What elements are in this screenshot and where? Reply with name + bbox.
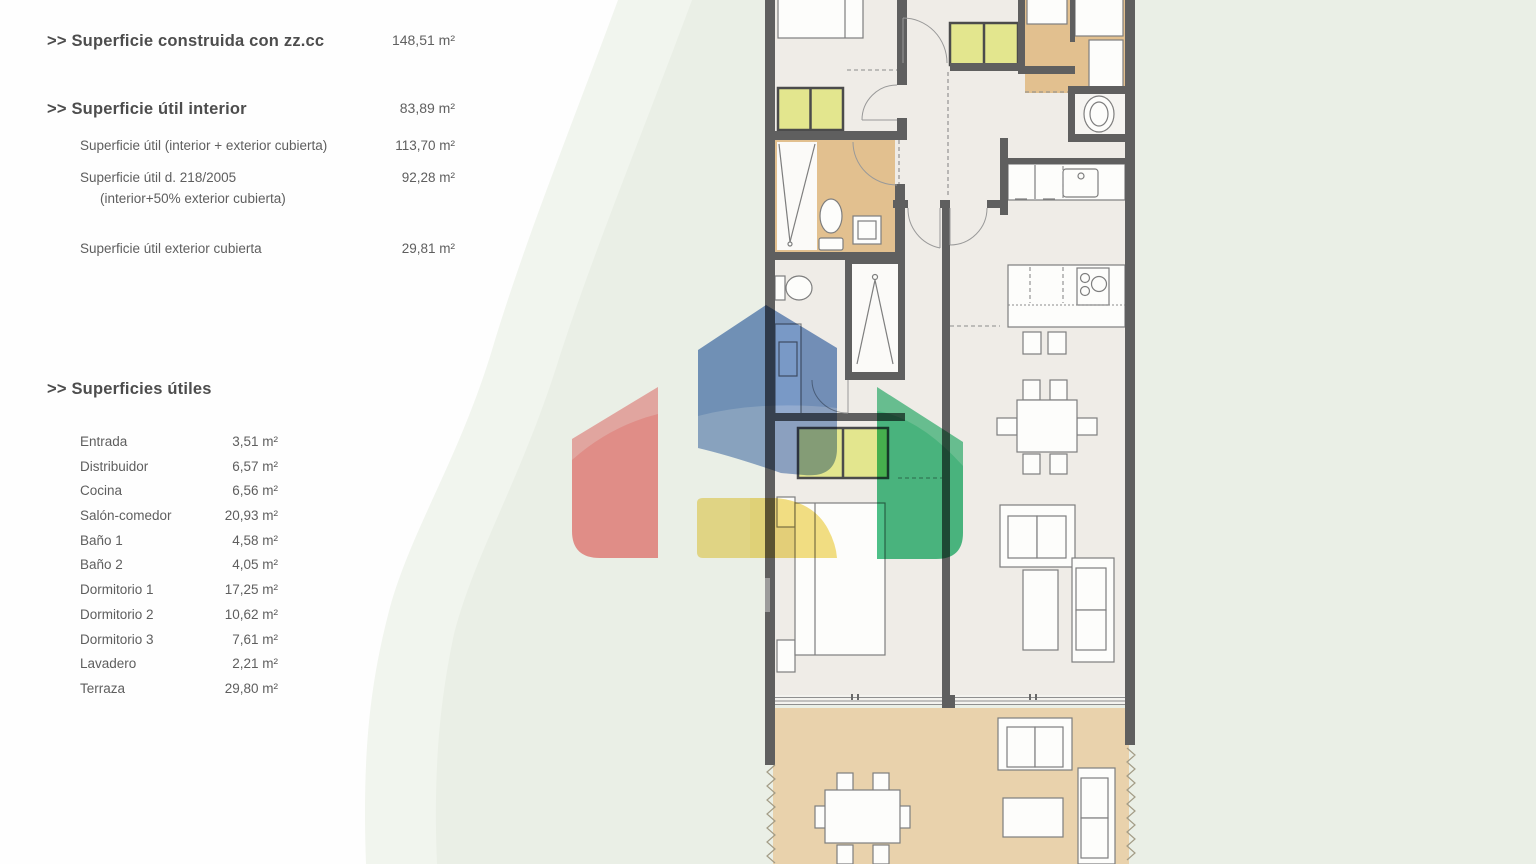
wall-right-exterior	[1125, 0, 1135, 745]
room-row-bano1: Baño 14,58 m²	[80, 533, 278, 558]
room-row-dormitorio2: Dormitorio 210,62 m²	[80, 607, 278, 632]
stool-2	[1048, 332, 1066, 354]
sink1	[853, 216, 881, 244]
usable-exterior-label: Superficie útil exterior cubierta	[80, 241, 262, 256]
coffee-table	[1023, 570, 1058, 650]
room-row-terraza: Terraza29,80 m²	[80, 681, 278, 706]
built-surface-row: >> Superficie construida con zz.cc 148,5…	[47, 32, 455, 51]
usable-interior-row: >> Superficie útil interior 83,89 m²	[47, 100, 455, 119]
window-right-strip	[955, 695, 1125, 705]
usable-detail-row: Superficie útil (interior + exterior cub…	[80, 138, 455, 153]
logo-yellow-highlight	[697, 498, 750, 558]
usable-decree-label: Superficie útil d. 218/2005	[80, 170, 236, 185]
room-row-lavadero: Lavadero2,21 m²	[80, 656, 278, 681]
house-logo	[572, 305, 963, 559]
nightstand-2	[777, 640, 795, 672]
usable-exterior-value: 29,81 m²	[402, 241, 455, 256]
room-surfaces-title: >> Superficies útiles	[47, 380, 212, 399]
entry-closet-b	[1075, 0, 1123, 36]
usable-decree-row: Superficie útil d. 218/2005(interior+50%…	[80, 170, 455, 206]
toilet1-tank	[819, 238, 843, 250]
brand-watermark	[560, 288, 970, 578]
wall-pillar-middle	[942, 695, 955, 708]
cooktop	[1077, 268, 1109, 305]
usable-exterior-row: Superficie útil exterior cubierta 29,81 …	[80, 241, 455, 256]
entry-closet-a	[1027, 0, 1067, 24]
room-row-dormitorio1: Dormitorio 117,25 m²	[80, 582, 278, 607]
usable-decree-sublabel: (interior+50% exterior cubierta)	[80, 191, 286, 206]
room-row-bano2: Baño 24,05 m²	[80, 557, 278, 582]
entry-closet-c	[1089, 40, 1123, 88]
surface-panel: >> Superficie construida con zz.cc 148,5…	[0, 0, 520, 864]
usable-detail-value: 113,70 m²	[395, 138, 455, 153]
usable-detail-label: Superficie útil (interior + exterior cub…	[80, 138, 327, 153]
built-surface-title: >> Superficie construida con zz.cc	[47, 32, 324, 51]
terrace-table	[825, 790, 900, 843]
usable-interior-title: >> Superficie útil interior	[47, 100, 247, 119]
room-row-cocina: Cocina6,56 m²	[80, 483, 278, 508]
room-row-dormitorio3: Dormitorio 37,61 m²	[80, 632, 278, 657]
dining-table	[1017, 400, 1077, 452]
wall-left-window-recess	[765, 578, 770, 612]
usable-interior-value: 83,89 m²	[400, 100, 455, 116]
terrace-coffee-table	[1003, 798, 1063, 837]
logo-blue-highlight	[698, 405, 837, 475]
room-surfaces-list: Entrada3,51 m² Distribuidor6,57 m² Cocin…	[80, 434, 278, 706]
usable-decree-value: 92,28 m²	[402, 170, 455, 185]
built-surface-value: 148,51 m²	[392, 32, 455, 48]
toilet1-bowl	[820, 199, 842, 233]
room-row-distribuidor: Distribuidor6,57 m²	[80, 459, 278, 484]
bed-dormitorio2	[778, 0, 863, 38]
room-row-salon: Salón-comedor20,93 m²	[80, 508, 278, 533]
room-surfaces-header: >> Superficies útiles	[47, 380, 455, 399]
room-row-entrada: Entrada3,51 m²	[80, 434, 278, 459]
stool-1	[1023, 332, 1041, 354]
